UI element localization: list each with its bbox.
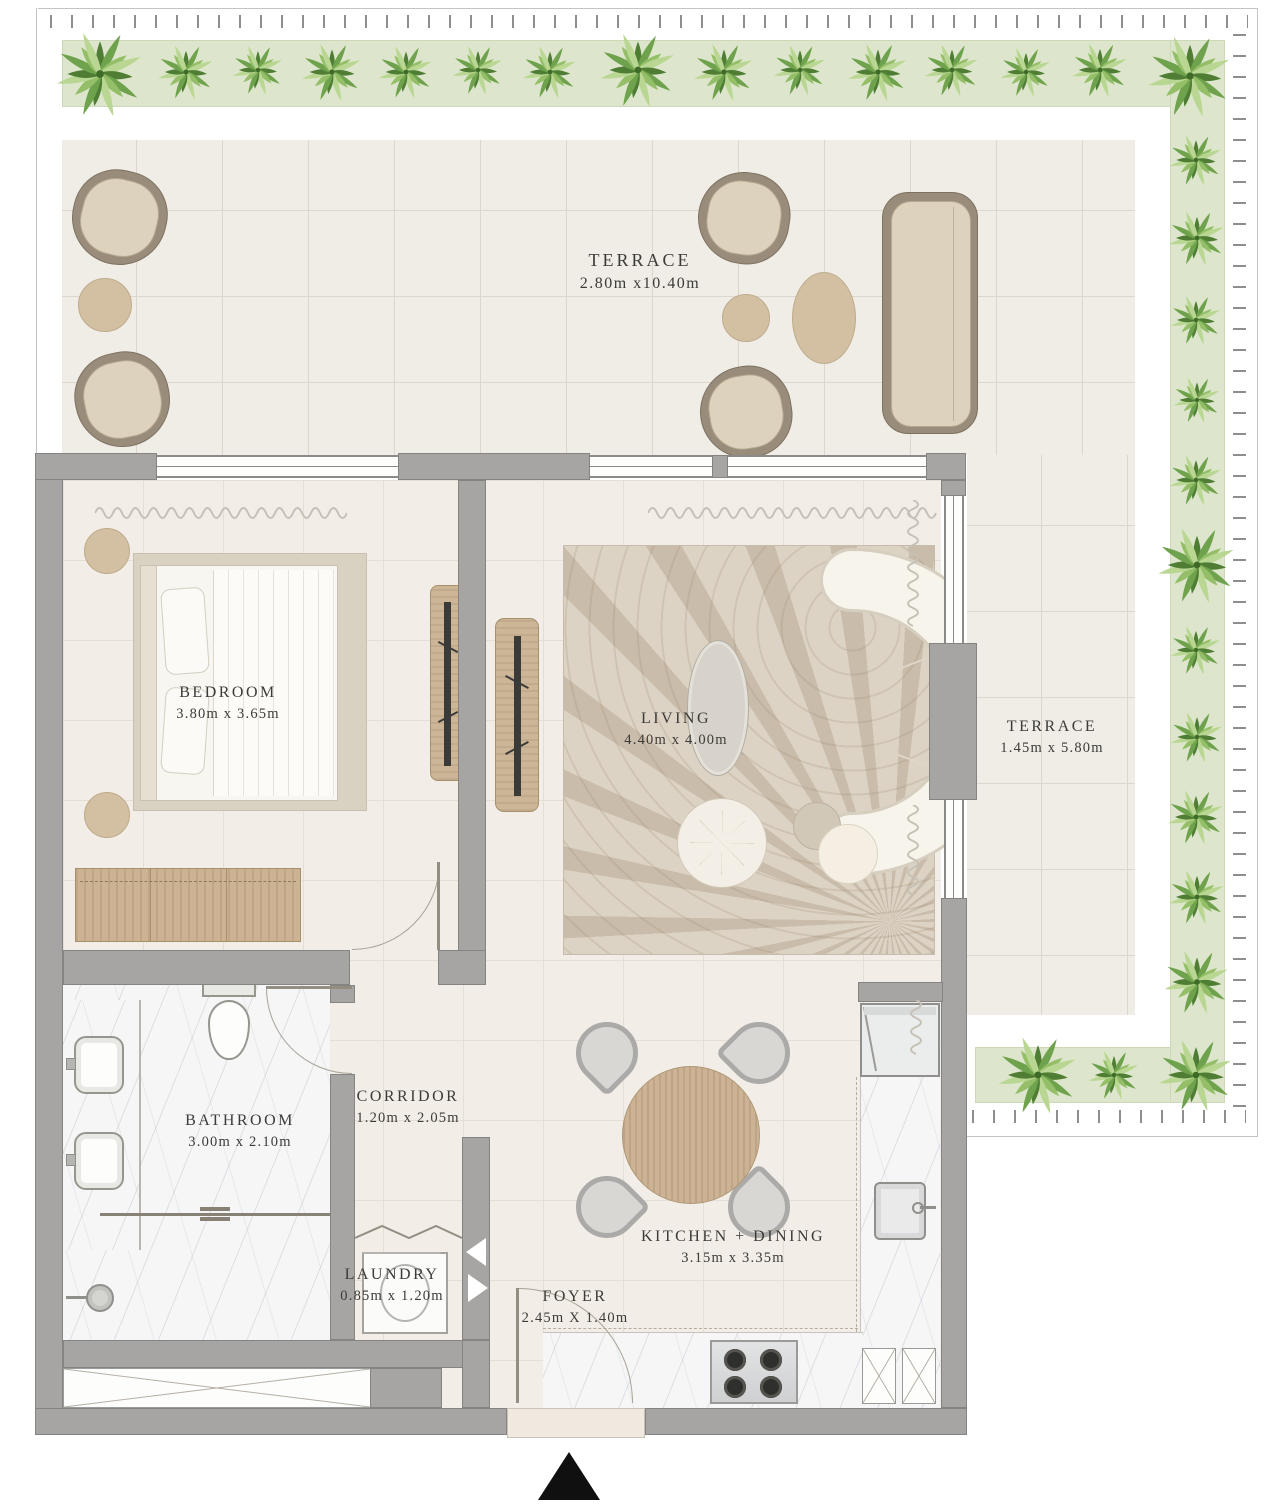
wall-segment: [941, 480, 966, 496]
riser-symbol: [466, 1238, 488, 1338]
plant-icon: [299, 39, 365, 105]
outdoor-sofa: [882, 192, 978, 434]
plant-icon: [230, 42, 286, 98]
curtain-squiggle: [648, 505, 940, 521]
sink: [74, 1036, 124, 1094]
floor-plan: TERRACE2.80m x10.40m TERRACE1.45m x 5.80…: [0, 0, 1280, 1506]
room-label-corridor: CORRIDOR1.20m x 2.05m: [356, 1088, 459, 1127]
wall-segment: [35, 453, 63, 1435]
wall-segment: [35, 1408, 507, 1435]
wall-segment: [35, 453, 157, 480]
void-shaft: [63, 1368, 371, 1408]
plant-icon: [596, 28, 680, 112]
wall-segment: [941, 898, 967, 1408]
oval-table: [687, 640, 749, 776]
plant-icon: [1069, 39, 1131, 101]
kitchen-sink: [874, 1182, 926, 1240]
shower-screen-handle: [200, 1217, 230, 1221]
duvet: [213, 570, 335, 796]
plant-icon: [922, 40, 982, 100]
room-label-terrace-right: TERRACE1.45m x 5.80m: [1000, 718, 1103, 757]
entrance-door-leaf: [516, 1288, 519, 1403]
plant-icon: [52, 26, 148, 122]
window: [590, 455, 712, 478]
tick-band-top: [50, 15, 1248, 28]
frame-line-top: [38, 8, 1258, 9]
plant-icon: [998, 44, 1054, 100]
wardrobe: [75, 868, 301, 942]
wall-segment: [462, 1340, 490, 1408]
curtain-squiggle: [905, 805, 921, 910]
room-label-living: LIVING4.40m x 4.00m: [624, 710, 727, 749]
plant-icon: [155, 41, 217, 103]
tv-console-living: [495, 618, 539, 812]
room-label-terrace-top: TERRACE2.80m x10.40m: [580, 250, 700, 293]
wall-segment: [926, 453, 966, 480]
room-label-kitchen-dining: KITCHEN + DINING3.15m x 3.35m: [641, 1228, 825, 1267]
plant-icon: [1167, 131, 1225, 189]
plant-icon: [845, 39, 911, 105]
plant-icon: [1161, 946, 1233, 1018]
room-label-foyer: FOYER2.45m X 1.40m: [522, 1288, 629, 1327]
dining-table: [622, 1066, 760, 1204]
faucet-icon: [66, 1058, 76, 1070]
side-table: [818, 824, 878, 884]
plant-icon: [450, 42, 506, 98]
curtain-squiggle: [908, 1000, 924, 1070]
pillow: [160, 587, 210, 676]
curtain-squiggle: [95, 505, 347, 521]
wall-segment: [858, 982, 943, 1002]
plant-icon: [1165, 786, 1227, 848]
wall-segment: [63, 1340, 490, 1368]
faucet-icon: [66, 1154, 76, 1166]
bathroom-door-leaf: [266, 986, 352, 989]
plant-icon: [1167, 451, 1225, 509]
room-label-laundry: LAUNDRY0.85m x 1.20m: [340, 1266, 443, 1305]
plant-icon: [1154, 522, 1240, 608]
window: [157, 455, 398, 478]
plant-icon: [1168, 708, 1226, 766]
window: [944, 800, 964, 898]
plant-icon: [691, 39, 757, 105]
fridge: [860, 1003, 940, 1077]
side-table: [78, 278, 132, 332]
tv-icon: [514, 636, 521, 796]
bed: [140, 565, 338, 801]
window: [728, 455, 926, 478]
plant-icon: [1166, 207, 1228, 269]
wall-segment: [438, 950, 486, 985]
plant-icon: [1086, 1047, 1142, 1103]
sink: [74, 1132, 124, 1190]
curtain-squiggle: [905, 500, 921, 640]
oval-coffee-table: [792, 272, 856, 364]
frame-line-bottom: [935, 1136, 1258, 1137]
plant-icon: [771, 41, 829, 99]
plant-icon: [1168, 622, 1224, 678]
side-table: [722, 294, 770, 342]
tall-cabinet: [862, 1348, 896, 1404]
laundry-bifold-door: [355, 1224, 463, 1240]
wall-segment: [370, 1368, 442, 1408]
entrance-threshold: [507, 1408, 645, 1438]
tall-cabinet: [902, 1348, 936, 1404]
plant-icon: [520, 42, 580, 102]
window: [944, 496, 964, 643]
plant-icon: [1155, 1034, 1237, 1116]
nightstand: [84, 528, 130, 574]
wall-segment: [929, 643, 977, 800]
plant-icon: [1144, 30, 1236, 122]
stove: [710, 1340, 798, 1404]
plant-icon: [1166, 866, 1228, 928]
plant-icon: [1168, 292, 1224, 348]
wall-segment: [458, 480, 486, 985]
plant-icon: [376, 42, 436, 102]
tv-icon: [444, 602, 451, 766]
north-arrow-icon: [538, 1452, 600, 1500]
room-label-bedroom: BEDROOM3.80m x 3.65m: [176, 684, 279, 723]
bedroom-door-leaf: [437, 862, 440, 950]
counter-edge: [856, 1077, 857, 1332]
wall-segment: [398, 453, 590, 480]
shower-screen-handle: [200, 1207, 230, 1211]
pouf: [677, 798, 767, 888]
room-label-bathroom: BATHROOM3.00m x 2.10m: [185, 1112, 295, 1151]
shower-head-icon: [86, 1284, 114, 1312]
plant-icon: [1171, 374, 1223, 426]
wall-segment: [712, 455, 728, 478]
plant-icon: [994, 1031, 1082, 1119]
frame-line-left: [36, 8, 37, 455]
frame-line-right: [1257, 8, 1258, 1137]
shower-screen: [100, 1213, 330, 1216]
nightstand: [84, 792, 130, 838]
wall-segment: [645, 1408, 967, 1435]
wall-segment: [63, 950, 350, 985]
